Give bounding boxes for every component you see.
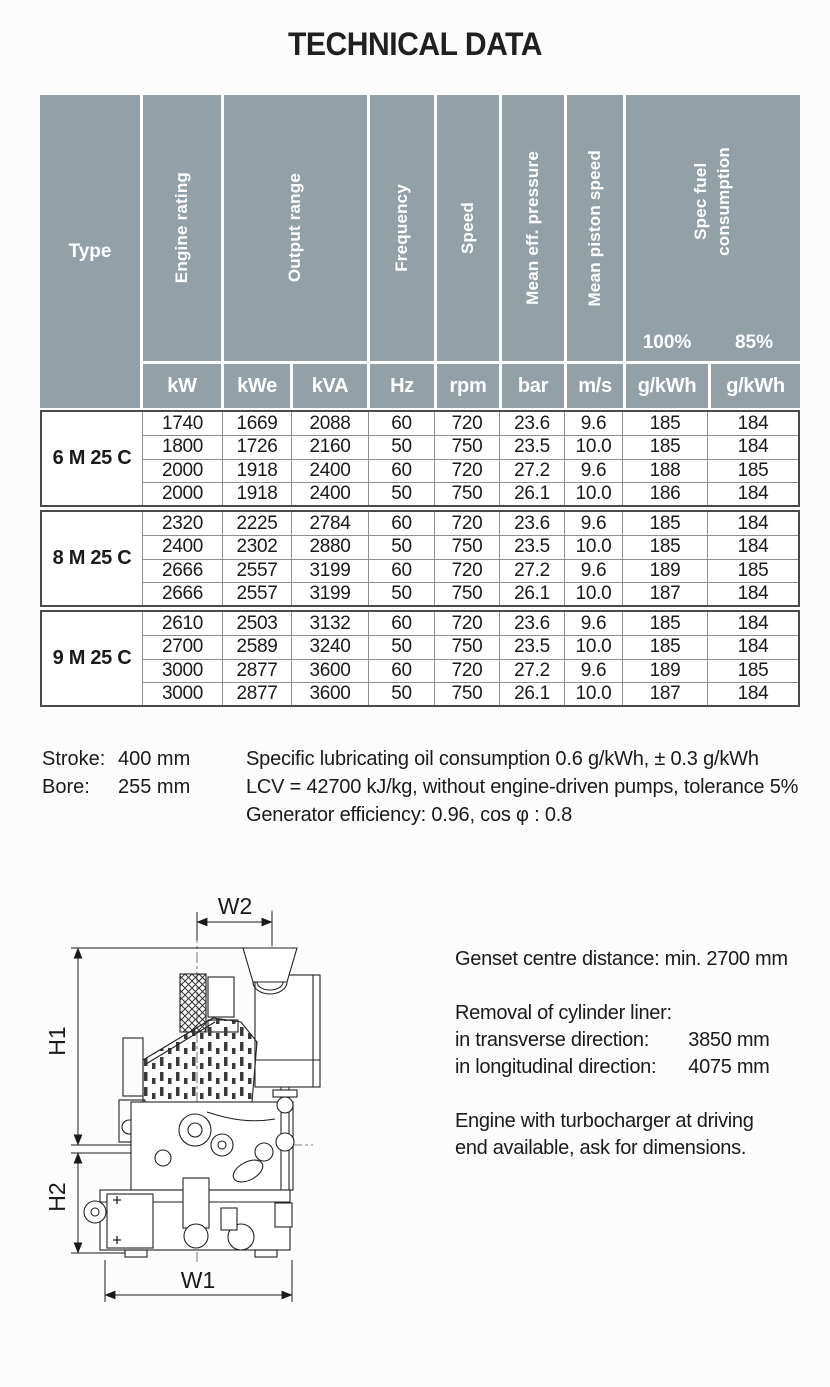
data-cell: 23.6 (499, 512, 564, 535)
engine-type-cell: 8 M 25 C (42, 512, 142, 605)
engine-group: 8 M 25 C2320222527846072023.69.618518424… (40, 510, 800, 607)
header-spec-fuel-consumption: Spec fuel consumption 100% 85% (626, 95, 800, 361)
engine-type-cell: 6 M 25 C (42, 412, 142, 505)
header-type: Type (40, 95, 140, 408)
engine-group: 9 M 25 C2610250331326072023.69.618518427… (40, 610, 800, 707)
data-cell: 185 (622, 635, 707, 658)
data-cell: 1918 (222, 482, 291, 505)
data-cell: 2700 (142, 635, 222, 658)
header-frequency: Frequency (370, 95, 434, 361)
data-cell: 750 (434, 582, 499, 605)
note-line: Specific lubricating oil consumption 0.6… (246, 745, 806, 773)
data-cell: 27.2 (499, 559, 564, 582)
dim-label-w1: W1 (181, 1267, 216, 1293)
removal-value: 4075 mm (688, 1056, 769, 1078)
unit-cell: kVA (293, 364, 367, 408)
data-cell: 9.6 (564, 412, 622, 435)
page-title: TECHNICAL DATA (25, 26, 805, 63)
data-cell: 3600 (291, 659, 368, 682)
data-cell: 10.0 (564, 682, 622, 705)
data-cell: 10.0 (564, 582, 622, 605)
data-cell: 26.1 (499, 682, 564, 705)
data-cell: 185 (707, 459, 798, 482)
data-cell: 184 (707, 635, 798, 658)
data-cell: 185 (707, 659, 798, 682)
data-cell: 50 (368, 482, 434, 505)
data-cell: 23.6 (499, 612, 564, 635)
data-cell: 9.6 (564, 512, 622, 535)
data-cell: 1726 (222, 435, 291, 458)
load-85-label: 85% (724, 332, 784, 354)
consumption-notes: Specific lubricating oil consumption 0.6… (246, 745, 806, 829)
data-cell: 26.1 (499, 582, 564, 605)
data-cell: 184 (707, 535, 798, 558)
data-cell: 2503 (222, 612, 291, 635)
data-cell: 3000 (142, 682, 222, 705)
engine-dimensions-notes: Stroke: 400 mm Bore: 255 mm (42, 745, 190, 801)
data-cell: 27.2 (499, 659, 564, 682)
data-cell: 1669 (222, 412, 291, 435)
bore-value: 255 mm (118, 773, 190, 801)
unit-cell: kWe (224, 364, 290, 408)
engine-group: 6 M 25 C1740166920886072023.69.618518418… (40, 410, 800, 507)
data-cell: 185 (622, 512, 707, 535)
data-cell: 50 (368, 582, 434, 605)
data-cell: 720 (434, 659, 499, 682)
data-cell: 2877 (222, 659, 291, 682)
data-cell: 60 (368, 559, 434, 582)
data-cell: 27.2 (499, 459, 564, 482)
data-cell: 186 (622, 482, 707, 505)
load-100-label: 100% (637, 332, 697, 354)
data-cell: 185 (622, 535, 707, 558)
data-cell: 3199 (291, 559, 368, 582)
data-cell: 720 (434, 412, 499, 435)
turbocharger-note-line: Engine with turbocharger at driving (455, 1108, 805, 1135)
removal-label: in longitudinal direction: (455, 1054, 683, 1081)
data-cell: 23.5 (499, 535, 564, 558)
data-cell: 750 (434, 635, 499, 658)
data-cell: 2000 (142, 482, 222, 505)
header-speed: Speed (437, 95, 499, 361)
data-cell: 2557 (222, 559, 291, 582)
dim-label-h1: H1 (45, 1026, 70, 1055)
unit-cell: m/s (567, 364, 623, 408)
removal-row: in transverse direction: 3850 mm (455, 1027, 805, 1054)
data-cell: 60 (368, 459, 434, 482)
data-cell: 2557 (222, 582, 291, 605)
data-cell: 50 (368, 682, 434, 705)
data-cell: 2610 (142, 612, 222, 635)
data-cell: 187 (622, 682, 707, 705)
spacer (455, 973, 805, 1000)
unit-cell: rpm (437, 364, 499, 408)
data-cell: 185 (622, 412, 707, 435)
removal-row: in longitudinal direction: 4075 mm (455, 1054, 805, 1081)
removal-title: Removal of cylinder liner: (455, 1000, 805, 1027)
engine-type-cell: 9 M 25 C (42, 612, 142, 705)
data-cell: 2400 (291, 482, 368, 505)
data-cell: 2784 (291, 512, 368, 535)
data-cell: 2320 (142, 512, 222, 535)
dim-label-h2: H2 (45, 1182, 70, 1211)
data-cell: 184 (707, 582, 798, 605)
data-cell: 184 (707, 435, 798, 458)
spacer (455, 1081, 805, 1108)
data-cell: 2589 (222, 635, 291, 658)
data-cell: 50 (368, 435, 434, 458)
spec-fuel-label: Spec fuel consumption (690, 147, 736, 256)
technical-data-table: Type Engine rating Output range Frequenc… (40, 95, 800, 715)
data-cell: 184 (707, 482, 798, 505)
data-cell: 10.0 (564, 635, 622, 658)
data-cell: 9.6 (564, 559, 622, 582)
data-cell: 9.6 (564, 612, 622, 635)
data-cell: 2666 (142, 559, 222, 582)
data-cell: 2400 (291, 459, 368, 482)
stroke-value: 400 mm (118, 745, 190, 773)
data-cell: 720 (434, 512, 499, 535)
data-cell: 750 (434, 682, 499, 705)
data-cell: 2880 (291, 535, 368, 558)
data-cell: 3000 (142, 659, 222, 682)
data-cell: 720 (434, 612, 499, 635)
data-cell: 185 (622, 435, 707, 458)
data-cell: 184 (707, 412, 798, 435)
data-cell: 50 (368, 635, 434, 658)
stroke-row: Stroke: 400 mm (42, 745, 190, 773)
unit-cell: g/kWh (711, 364, 800, 408)
data-cell: 9.6 (564, 459, 622, 482)
header-mean-eff-pressure: Mean eff. pressure (502, 95, 564, 361)
header-type-label: Type (69, 241, 112, 263)
data-cell: 750 (434, 535, 499, 558)
data-cell: 2302 (222, 535, 291, 558)
data-cell: 10.0 (564, 482, 622, 505)
genset-distance-line: Genset centre distance: min. 2700 mm (455, 946, 805, 973)
header-output-range: Output range (224, 95, 367, 361)
engine-body (84, 948, 320, 1257)
data-cell: 1800 (142, 435, 222, 458)
data-cell: 187 (622, 582, 707, 605)
data-cell: 2225 (222, 512, 291, 535)
data-cell: 189 (622, 659, 707, 682)
data-cell: 10.0 (564, 535, 622, 558)
data-cell: 3132 (291, 612, 368, 635)
dim-label-w2: W2 (218, 893, 253, 919)
data-cell: 50 (368, 535, 434, 558)
data-cell: 184 (707, 612, 798, 635)
note-line: LCV = 42700 kJ/kg, without engine-driven… (246, 773, 806, 801)
data-cell: 26.1 (499, 482, 564, 505)
turbocharger-note-line: end available, ask for dimensions. (455, 1135, 805, 1162)
unit-cell: Hz (370, 364, 434, 408)
unit-cell: kW (143, 364, 221, 408)
stroke-label: Stroke: (42, 745, 118, 773)
data-cell: 184 (707, 682, 798, 705)
data-cell: 188 (622, 459, 707, 482)
unit-cell: bar (502, 364, 564, 408)
data-cell: 60 (368, 512, 434, 535)
removal-label: in transverse direction: (455, 1027, 683, 1054)
data-cell: 2000 (142, 459, 222, 482)
data-cell: 10.0 (564, 435, 622, 458)
data-cell: 3199 (291, 582, 368, 605)
data-cell: 23.5 (499, 435, 564, 458)
data-cell: 23.6 (499, 412, 564, 435)
header-mean-piston-speed: Mean piston speed (567, 95, 623, 361)
data-cell: 2160 (291, 435, 368, 458)
data-cell: 23.5 (499, 635, 564, 658)
engine-cross-section-drawing: W2 H1 H2 W1 (45, 890, 405, 1320)
data-cell: 185 (622, 612, 707, 635)
data-cell: 720 (434, 459, 499, 482)
data-cell: 2877 (222, 682, 291, 705)
data-cell: 1740 (142, 412, 222, 435)
unit-cell: g/kWh (626, 364, 708, 408)
data-cell: 2400 (142, 535, 222, 558)
data-cell: 60 (368, 659, 434, 682)
data-cell: 720 (434, 559, 499, 582)
datasheet-page: TECHNICAL DATA Type Engine rating Output… (0, 0, 830, 1387)
data-cell: 189 (622, 559, 707, 582)
data-cell: 750 (434, 435, 499, 458)
data-cell: 3240 (291, 635, 368, 658)
removal-value: 3850 mm (688, 1029, 769, 1051)
data-cell: 184 (707, 512, 798, 535)
installation-info: Genset centre distance: min. 2700 mm Rem… (455, 946, 805, 1162)
data-cell: 750 (434, 482, 499, 505)
data-cell: 9.6 (564, 659, 622, 682)
data-cell: 60 (368, 612, 434, 635)
data-cell: 3600 (291, 682, 368, 705)
header-engine-rating: Engine rating (143, 95, 221, 361)
data-cell: 185 (707, 559, 798, 582)
data-cell: 1918 (222, 459, 291, 482)
bore-row: Bore: 255 mm (42, 773, 190, 801)
data-cell: 60 (368, 412, 434, 435)
note-line: Generator efficiency: 0.96, cos φ : 0.8 (246, 801, 806, 829)
data-cell: 2088 (291, 412, 368, 435)
data-cell: 2666 (142, 582, 222, 605)
bore-label: Bore: (42, 773, 118, 801)
